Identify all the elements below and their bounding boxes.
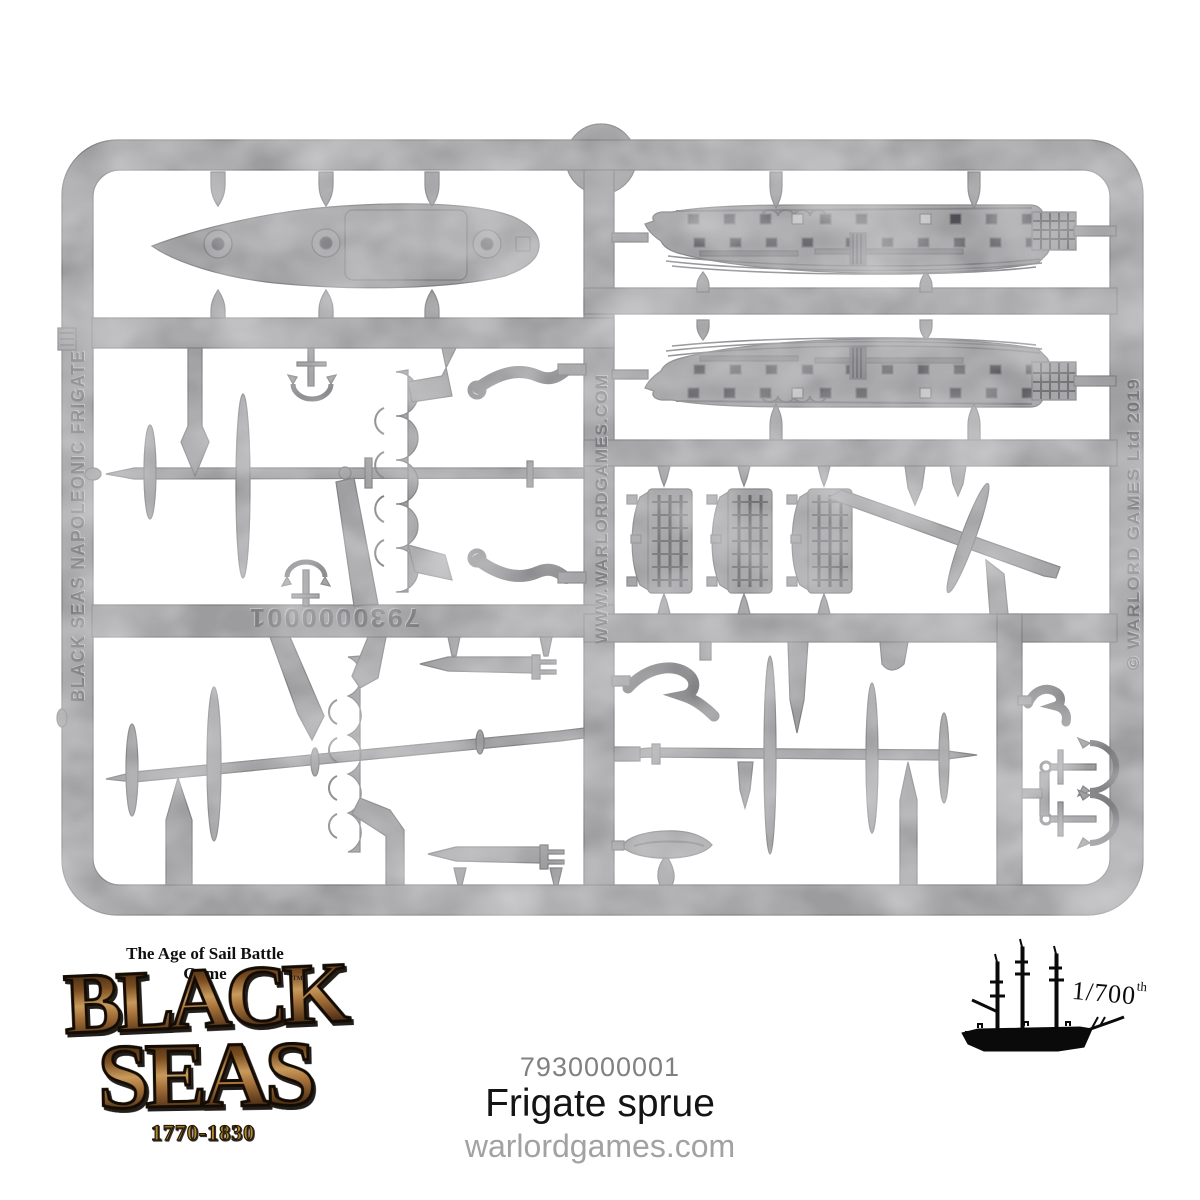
product-photo: BLACK SEAS NAPOLEONIC FRIGATE BLACK SEAS… bbox=[0, 0, 1200, 1200]
sprue-mold-number: 7930000001 7930000001 bbox=[247, 602, 420, 633]
sprue-text-left: BLACK SEAS NAPOLEONIC FRIGATE BLACK SEAS… bbox=[68, 349, 89, 702]
mast-assembly-upper bbox=[106, 348, 586, 606]
scale-label: 1/700th bbox=[1071, 973, 1148, 1012]
sprue-text-right-main: © WARLORD GAMES Ltd 2019 bbox=[1124, 378, 1143, 670]
anchor-small-upper bbox=[288, 348, 336, 399]
sprue-text-right: © WARLORD GAMES Ltd 2019 © WARLORD GAMES… bbox=[1124, 377, 1144, 670]
logo-trademark: ™ bbox=[292, 974, 303, 986]
sprue: BLACK SEAS NAPOLEONIC FRIGATE BLACK SEAS… bbox=[57, 124, 1144, 915]
anchor-part-lower bbox=[1041, 790, 1116, 848]
sprue-text-center-main: WWW.WARLORDGAMES.COM bbox=[592, 374, 611, 644]
stern-gallery-parts bbox=[627, 466, 852, 614]
deck-part bbox=[152, 172, 539, 318]
figurehead-part bbox=[628, 668, 714, 716]
scale-suffix: th bbox=[1136, 978, 1147, 994]
sprue-right-bar-upper bbox=[584, 288, 1117, 314]
anchor-part-upper bbox=[1041, 738, 1116, 796]
ships-boat-part bbox=[612, 831, 712, 885]
bowsprit-assembly bbox=[612, 642, 977, 885]
anchor-parts bbox=[1018, 689, 1116, 848]
sprue-mold-number-main: 7930000001 bbox=[248, 603, 420, 633]
sprue-text-center: WWW.WARLORDGAMES.COM WWW.WARLORDGAMES.CO… bbox=[592, 373, 612, 644]
scale-value: 1/700 bbox=[1071, 976, 1138, 1010]
sprue-right-bar-lower bbox=[584, 614, 1117, 642]
hull-side-part-lower bbox=[612, 320, 1116, 440]
mast-assembly-lower bbox=[106, 637, 584, 885]
crossed-spars-part bbox=[828, 466, 1060, 614]
cathead-part bbox=[1028, 689, 1067, 722]
product-name: Frigate sprue bbox=[0, 1082, 1200, 1126]
website: warlordgames.com bbox=[0, 1128, 1200, 1165]
sprue-right-bar-middle bbox=[584, 440, 1117, 466]
davit-part-upper bbox=[478, 370, 566, 388]
sprue-right-sub-bar bbox=[997, 614, 1022, 885]
hull-side-part-upper bbox=[612, 172, 1116, 292]
davit-part-lower bbox=[478, 560, 566, 578]
sprue-left-bar-upper bbox=[92, 318, 614, 348]
anchor-small-lower bbox=[282, 562, 330, 606]
sprue-text-left-main: BLACK SEAS NAPOLEONIC FRIGATE bbox=[68, 350, 88, 702]
